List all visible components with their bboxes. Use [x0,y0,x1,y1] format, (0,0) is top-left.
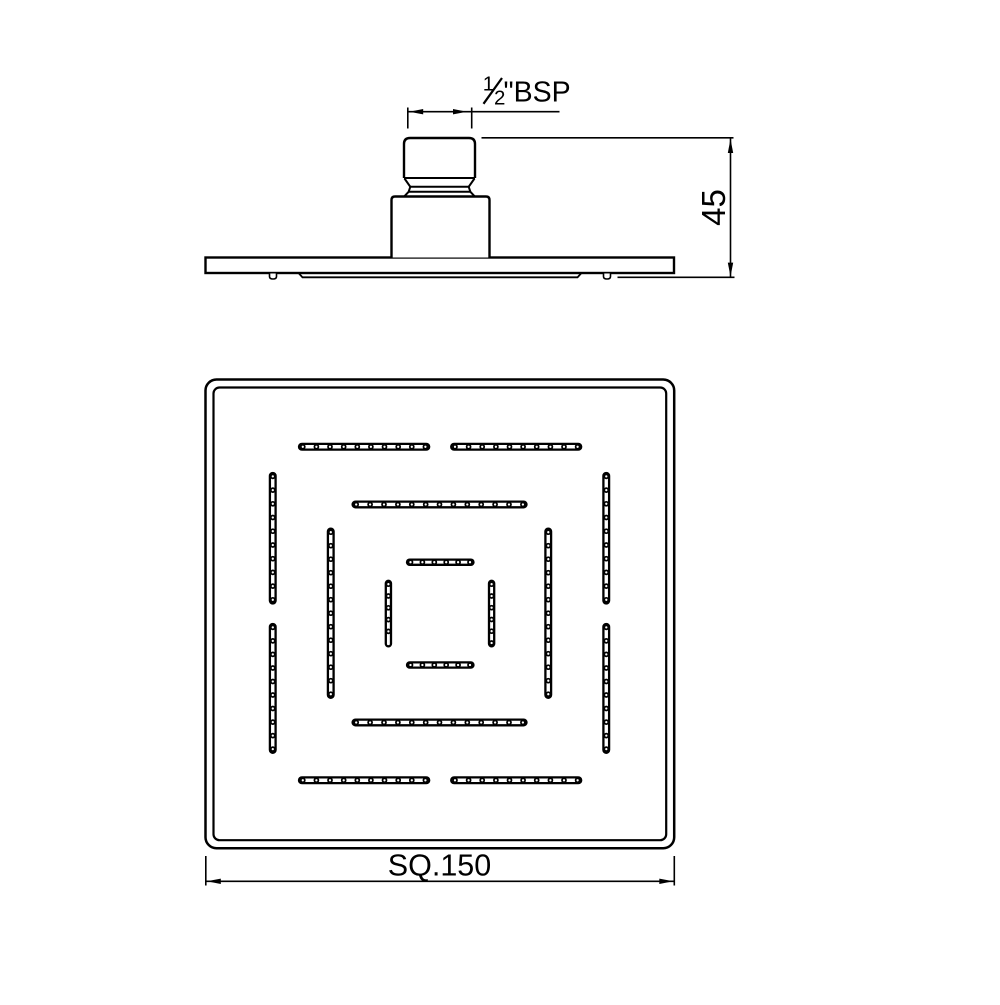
svg-text:45: 45 [695,189,732,226]
svg-text:SQ.150: SQ.150 [388,849,491,883]
svg-text:"BSP: "BSP [504,77,571,109]
